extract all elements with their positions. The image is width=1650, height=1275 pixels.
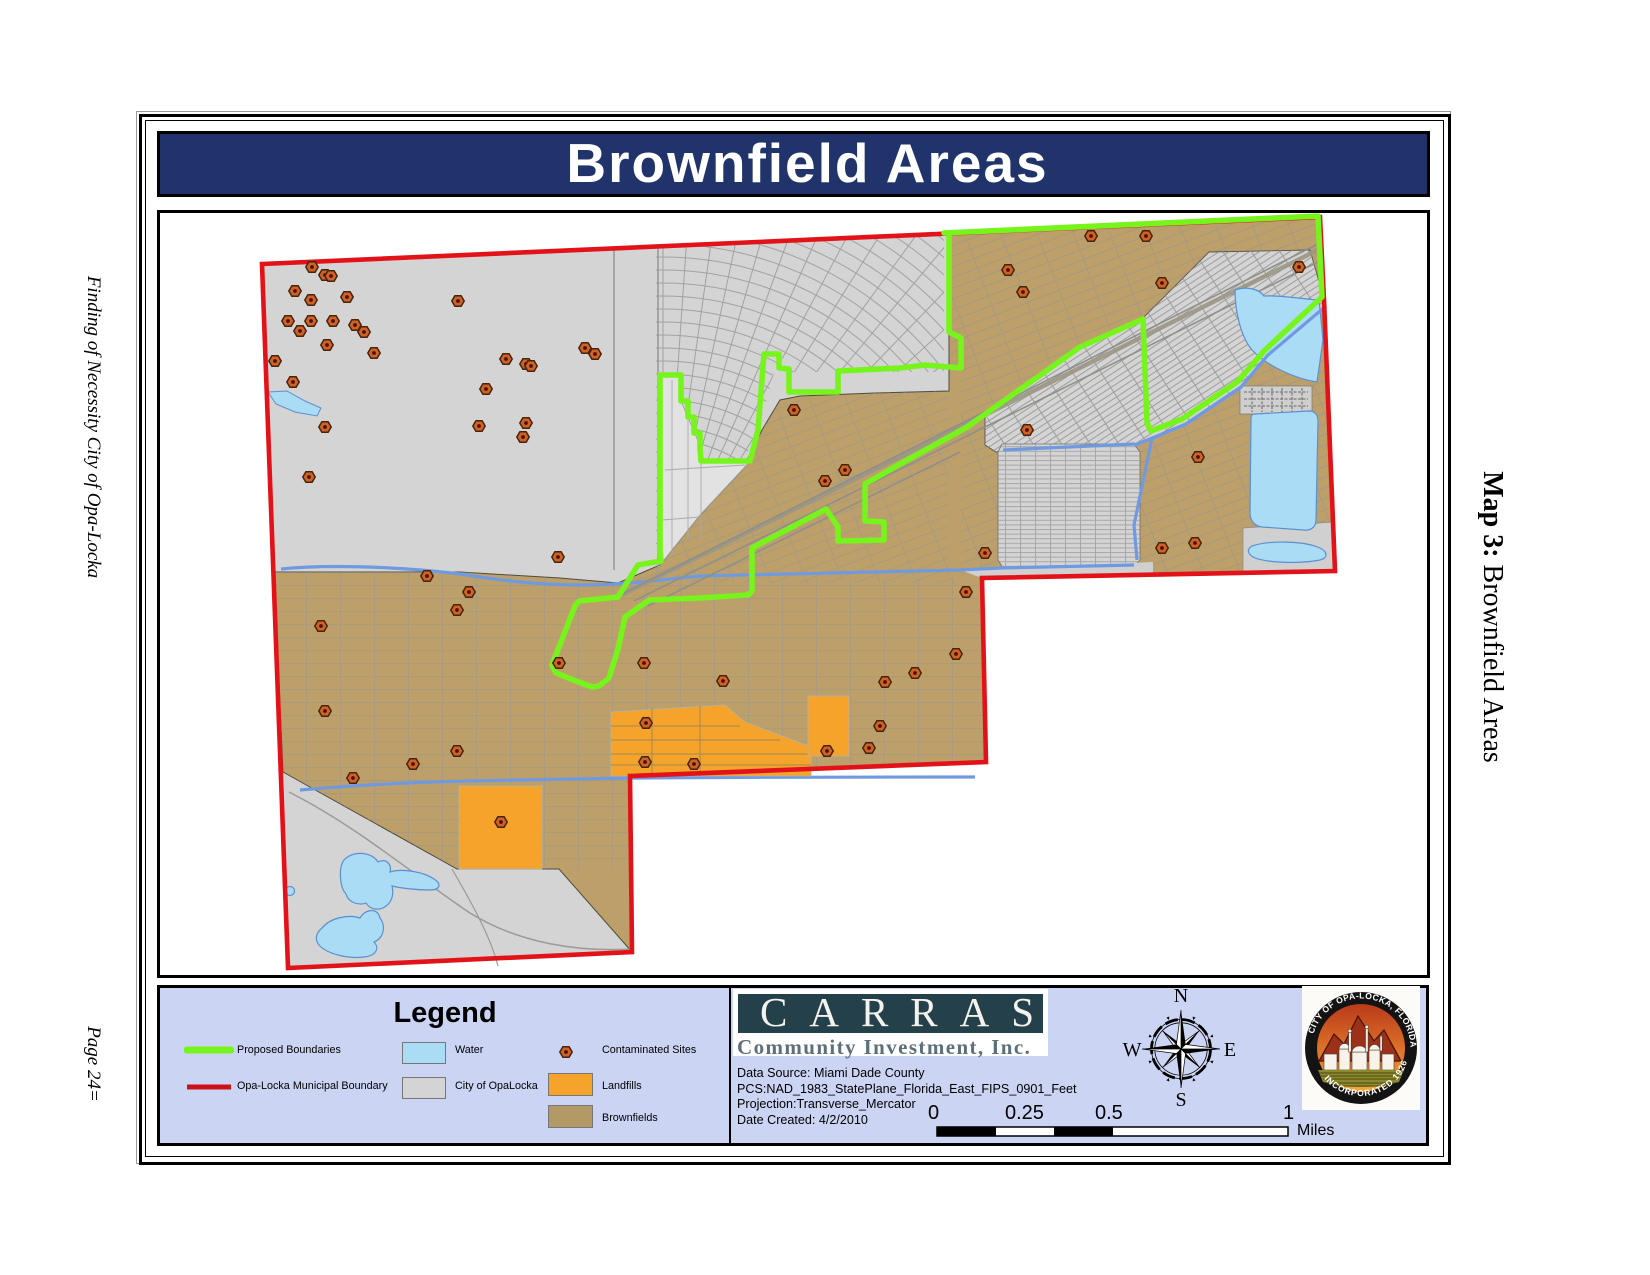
- svg-text:E: E: [1224, 1039, 1236, 1061]
- svg-text:S: S: [1175, 1089, 1186, 1110]
- svg-text:N: N: [1174, 985, 1188, 1007]
- svg-text:W: W: [1123, 1039, 1142, 1061]
